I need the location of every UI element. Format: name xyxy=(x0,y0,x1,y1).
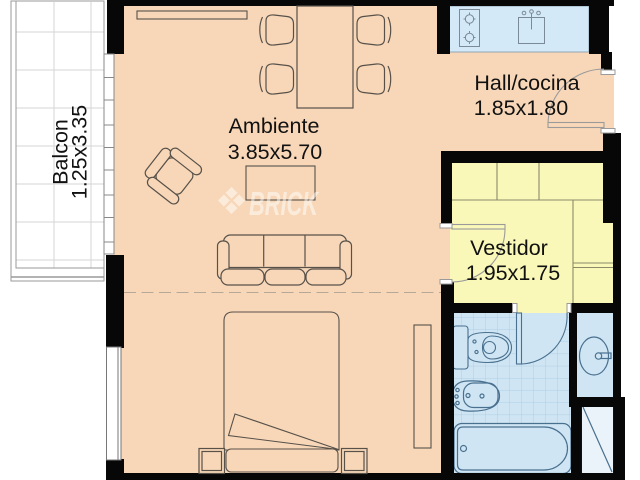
svg-text:Vestidor: Vestidor xyxy=(470,236,548,260)
svg-text:1.25x3.35: 1.25x3.35 xyxy=(68,105,92,199)
svg-text:3.85x5.70: 3.85x5.70 xyxy=(228,140,322,164)
svg-text:1.95x1.75: 1.95x1.75 xyxy=(466,261,560,285)
svg-text:Ambiente: Ambiente xyxy=(229,114,320,138)
svg-text:Hall/cocina: Hall/cocina xyxy=(474,71,579,95)
svg-text:BRICK: BRICK xyxy=(249,185,319,222)
svg-text:1.85x1.80: 1.85x1.80 xyxy=(474,96,568,120)
